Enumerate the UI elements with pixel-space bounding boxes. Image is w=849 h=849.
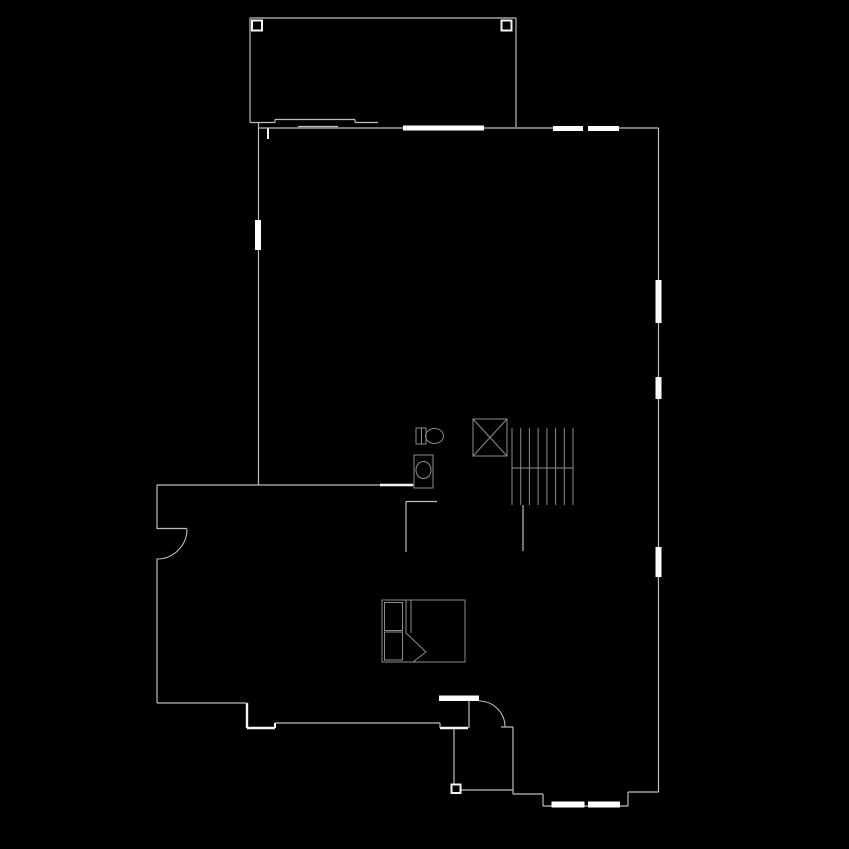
left-door-swing-arc <box>157 529 187 559</box>
deck-post-left <box>252 21 262 31</box>
deck-post-right <box>502 21 512 31</box>
window-top-right-2 <box>588 126 619 131</box>
window-bay-1 <box>552 802 585 808</box>
entry-door-slab <box>439 696 479 702</box>
window-right-1 <box>656 280 662 323</box>
window-right-3 <box>656 547 662 577</box>
window-left-1 <box>255 220 261 250</box>
bed-pillow-2 <box>385 632 403 660</box>
floor-plan-drawing <box>0 0 849 849</box>
window-right-2 <box>656 377 662 399</box>
bed-pillow-1 <box>385 603 403 631</box>
window-top-right-1 <box>553 126 583 131</box>
window-top-large <box>403 126 484 131</box>
vanity-counter <box>414 455 433 488</box>
floor-plan-canvas <box>0 0 849 849</box>
bed-fold-corner <box>406 633 426 662</box>
porch-post <box>452 785 461 794</box>
sink-basin <box>416 462 431 479</box>
window-bay-2 <box>588 802 620 808</box>
entry-door-swing-arc <box>479 701 505 727</box>
toilet-bowl <box>426 429 444 444</box>
